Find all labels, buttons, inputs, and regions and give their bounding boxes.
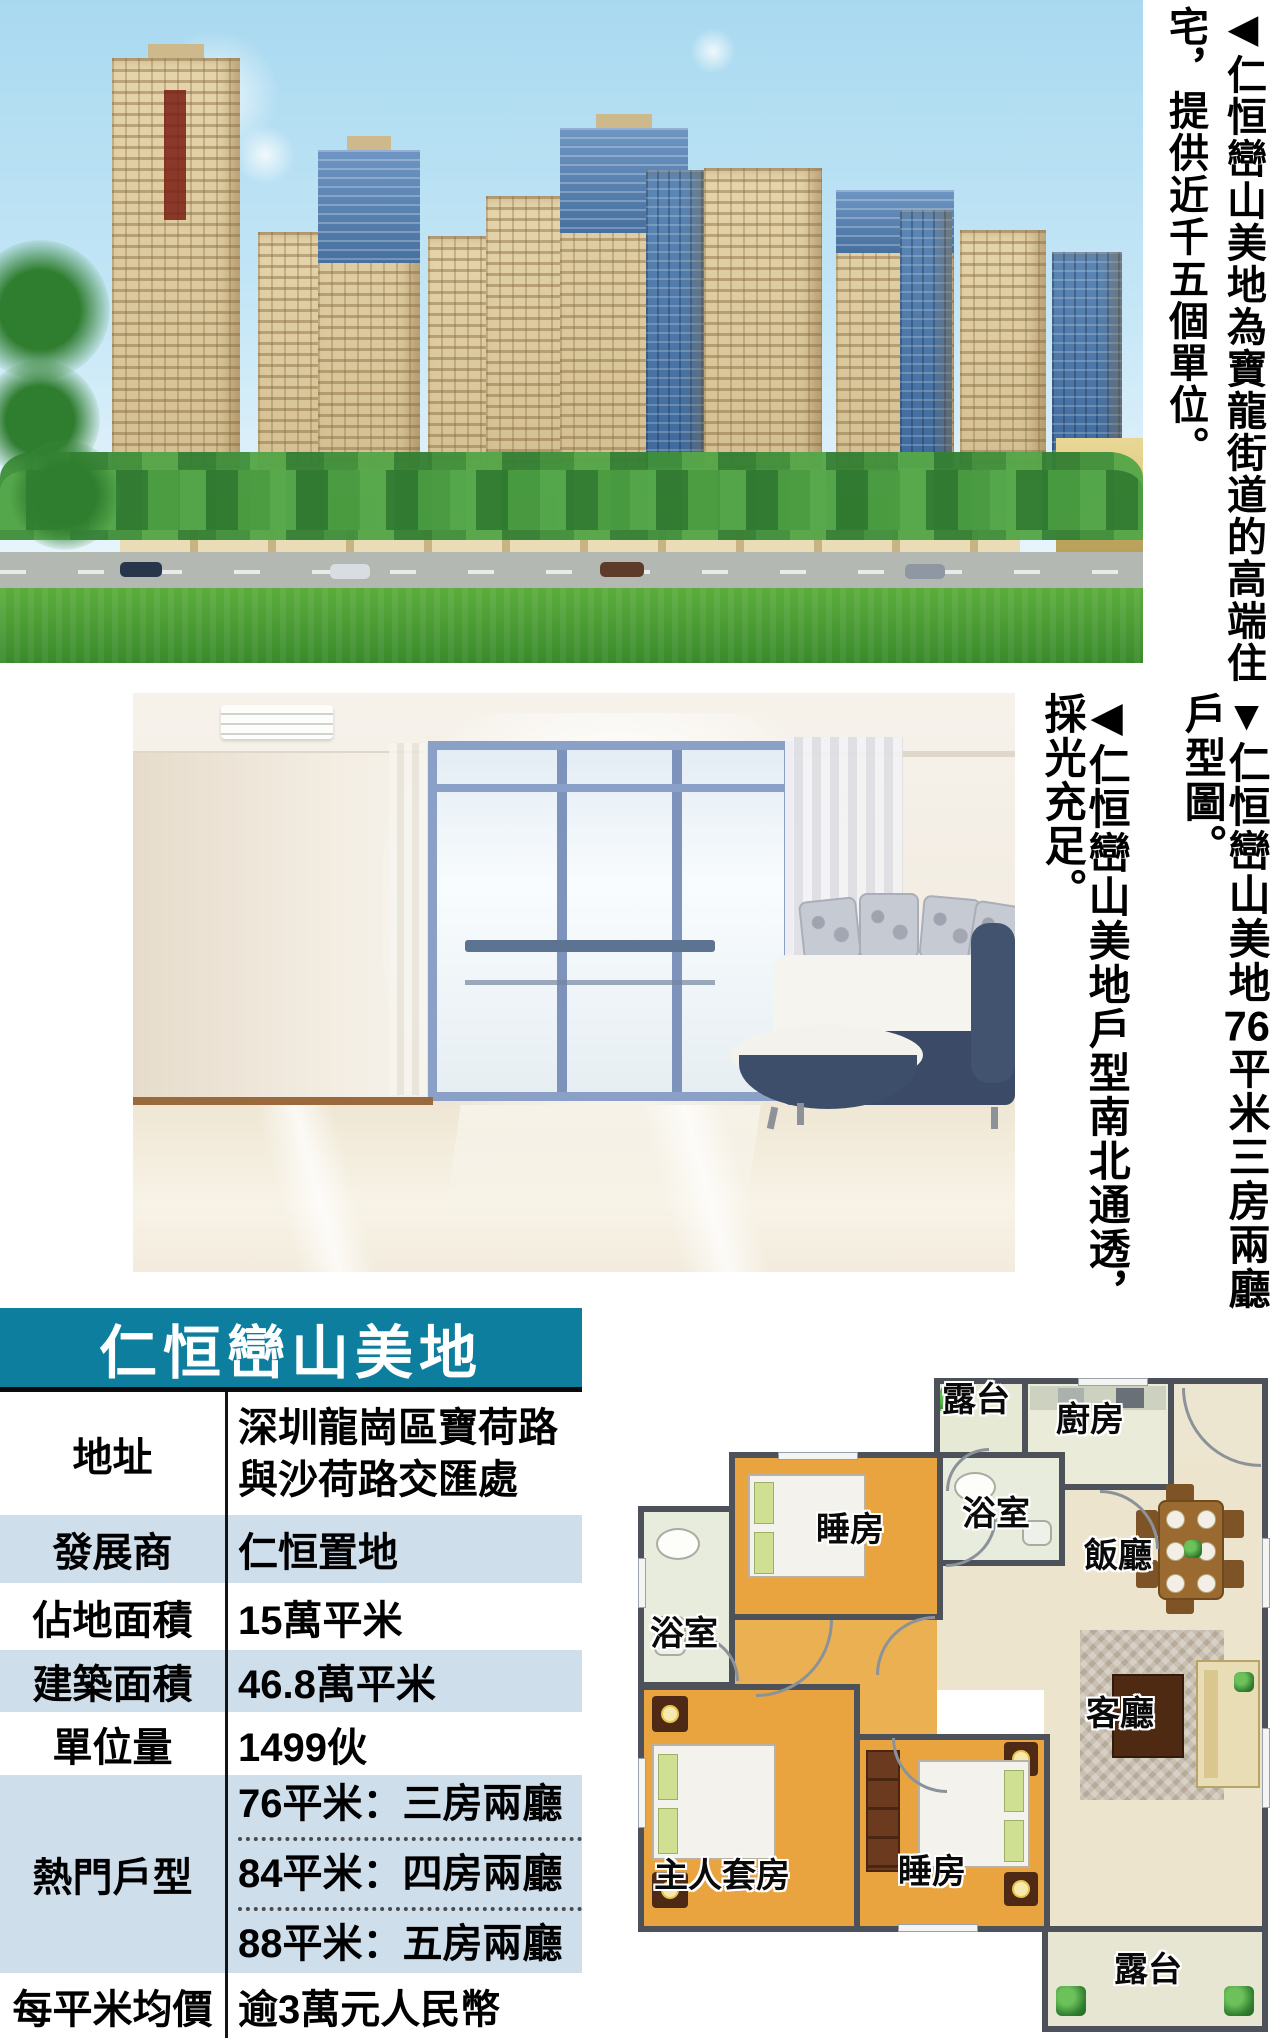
chair-icon <box>1222 1510 1244 1538</box>
table-row-site-area: 佔地面積 15萬平米 <box>0 1583 582 1650</box>
caption-number: 76 <box>1223 1005 1270 1047</box>
wardrobe-icon <box>866 1750 900 1872</box>
row-label: 熱門戶型 <box>0 1775 225 1973</box>
lawn <box>0 588 1143 663</box>
street <box>0 552 1143 592</box>
toilet-icon <box>656 1528 700 1560</box>
caption-living-photo-col1: ◀仁恒巒山美地戶型南北通透， <box>1084 692 1128 1315</box>
dining-table-icon <box>1158 1500 1224 1600</box>
caption-text: ▼仁恒巒山美地 <box>1223 692 1270 1005</box>
caption-top-photo-col2: 宅，提供近千五個單位。 <box>1164 6 1206 468</box>
sofa-leg <box>991 1107 998 1129</box>
residential-tower <box>704 168 822 476</box>
plant-icon <box>1224 1986 1254 2016</box>
window-icon <box>638 1558 646 1608</box>
caption-floor-plan-col2: 戶型圖。 <box>1180 692 1224 868</box>
room-label-balcony-bottom: 露台 <box>1114 1952 1182 1989</box>
glass-tower <box>900 210 952 472</box>
caption-living-photo-col2: 採光充足。 <box>1040 692 1084 912</box>
palm-tree-icon <box>0 240 110 380</box>
outer-wall <box>1262 1464 1268 1934</box>
project-info-table: 仁恒巒山美地 地址 深圳龍崗區寶荷路 與沙荷路交匯處 發展商 仁恒置地 佔地面積… <box>0 1308 582 2038</box>
plant-icon <box>1056 1986 1086 2016</box>
room-label-bedroom-top: 睡房 <box>816 1512 884 1549</box>
window-icon <box>898 1924 978 1932</box>
residential-tower <box>318 150 420 482</box>
room-label-living: 客廳 <box>1086 1696 1154 1733</box>
floor-reflection <box>445 1105 760 1215</box>
residential-tower <box>112 58 240 488</box>
window-icon <box>1078 1378 1148 1386</box>
table-row-developer: 發展商 仁恒置地 <box>0 1515 582 1583</box>
caption-text: 平米三房兩廳 <box>1223 1047 1270 1311</box>
lens-flare-icon <box>235 125 295 185</box>
row-label: 建築面積 <box>0 1650 225 1712</box>
car-icon <box>120 562 162 577</box>
window-icon <box>1262 1728 1270 1808</box>
plant-icon <box>1234 1672 1254 1692</box>
living-room-photo <box>133 693 1015 1272</box>
layout-option: 88平米：五房兩廳 <box>238 1911 582 1977</box>
row-label: 佔地面積 <box>0 1583 225 1650</box>
newspaper-clipping-page: ◀仁恒巒山美地為寶龍街道的高端住 宅，提供近千五個單位。 ▼仁恒巒山美地76平米… <box>0 0 1274 2038</box>
table-row-gfa: 建築面積 46.8萬平米 <box>0 1650 582 1712</box>
bedside-lamp-icon <box>1004 1872 1038 1906</box>
layout-option: 84平米：四房兩廳 <box>238 1841 582 1911</box>
row-label: 地址 <box>0 1392 225 1515</box>
row-value: 15萬平米 <box>238 1588 582 1646</box>
address-line: 深圳龍崗區寶荷路 <box>238 1402 582 1454</box>
table-row-popular-layouts: 熱門戶型 76平米：三房兩廳 84平米：四房兩廳 88平米：五房兩廳 <box>0 1775 582 1973</box>
room-label-master-bedroom: 主人套房 <box>654 1858 790 1895</box>
window-icon <box>1262 1538 1270 1608</box>
tree-line <box>0 470 1143 530</box>
bedside-lamp-icon <box>652 1696 688 1732</box>
sofa-pillow <box>859 893 919 959</box>
layout-option: 76平米：三房兩廳 <box>238 1771 582 1841</box>
residential-tower <box>960 230 1046 476</box>
table-row-average-price: 每平米均價 逾3萬元人民幣 <box>0 1973 582 2038</box>
window-icon <box>778 1452 858 1460</box>
row-label: 單位量 <box>0 1712 225 1775</box>
floor-plan-diagram: 露台 廚房 睡房 浴室 浴室 飯廳 客廳 主人套房 睡房 露台 <box>638 1378 1270 2038</box>
car-icon <box>600 562 644 577</box>
row-value: 46.8萬平米 <box>238 1652 582 1710</box>
bed-icon <box>652 1744 776 1860</box>
room-label-bathroom-left: 浴室 <box>650 1616 718 1653</box>
row-value: 逾3萬元人民幣 <box>238 1977 582 2035</box>
palm-tree-icon <box>10 440 120 550</box>
address-line: 與沙荷路交匯處 <box>238 1454 582 1506</box>
sofa-leg <box>797 1103 804 1125</box>
table-title: 仁恒巒山美地 <box>0 1308 582 1392</box>
caption-top-photo-col1: ◀仁恒巒山美地為寶龍街道的高端住 <box>1222 6 1264 684</box>
window-icon <box>638 1758 646 1828</box>
lens-flare-icon <box>690 28 736 74</box>
row-value: 1499伙 <box>238 1715 582 1773</box>
row-value: 仁恒置地 <box>238 1520 582 1578</box>
car-icon <box>905 564 945 579</box>
table-row-address: 地址 深圳龍崗區寶荷路 與沙荷路交匯處 <box>0 1392 582 1515</box>
room-label-kitchen: 廚房 <box>1056 1402 1124 1439</box>
air-conditioner-icon <box>221 705 333 739</box>
room-label-dining: 飯廳 <box>1084 1538 1152 1575</box>
row-label: 每平米均價 <box>0 1973 225 2038</box>
car-icon <box>330 564 370 579</box>
glass-tower <box>646 170 706 470</box>
chair-icon <box>1222 1560 1244 1588</box>
sofa-armrest <box>971 923 1015 1083</box>
balcony-railing <box>465 940 715 952</box>
room-label-bathroom-right: 浴室 <box>962 1496 1030 1533</box>
row-label: 發展商 <box>0 1515 225 1583</box>
caption-floor-plan-col1: ▼仁恒巒山美地76平米三房兩廳 <box>1224 692 1268 1311</box>
room-label-bedroom-second: 睡房 <box>898 1854 966 1891</box>
room-label-balcony-top: 露台 <box>942 1382 1010 1419</box>
development-rendering-photo <box>0 0 1143 663</box>
table-row-unit-count: 單位量 1499伙 <box>0 1712 582 1775</box>
sofa-pillow <box>798 896 862 964</box>
